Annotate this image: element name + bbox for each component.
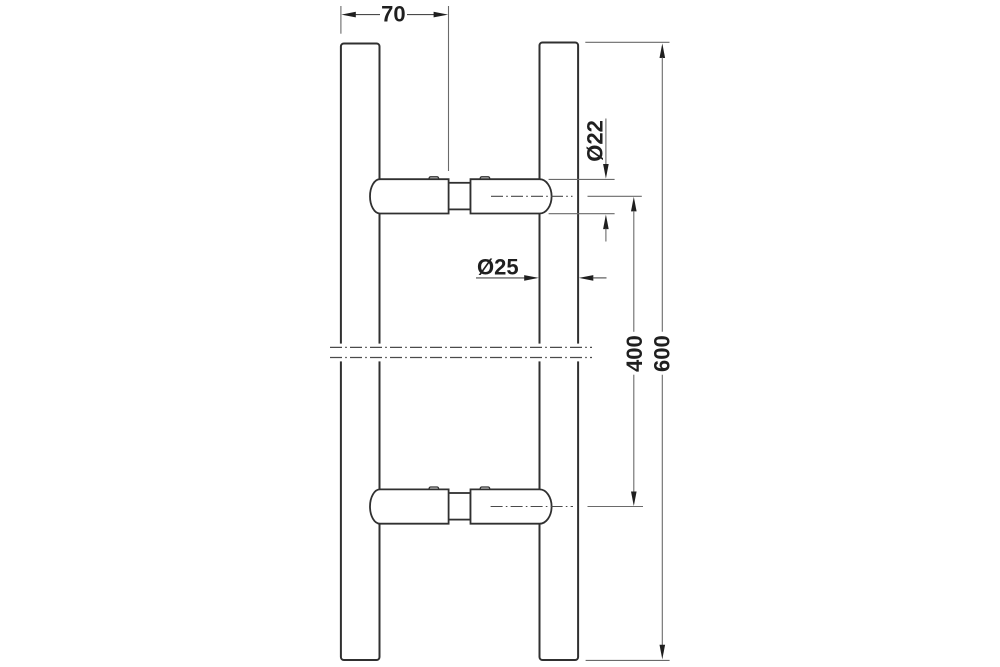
- svg-text:400: 400: [622, 335, 647, 372]
- svg-text:70: 70: [381, 2, 405, 27]
- svg-text:Ø25: Ø25: [477, 255, 519, 280]
- svg-text:600: 600: [650, 335, 675, 372]
- svg-text:Ø22: Ø22: [583, 120, 608, 162]
